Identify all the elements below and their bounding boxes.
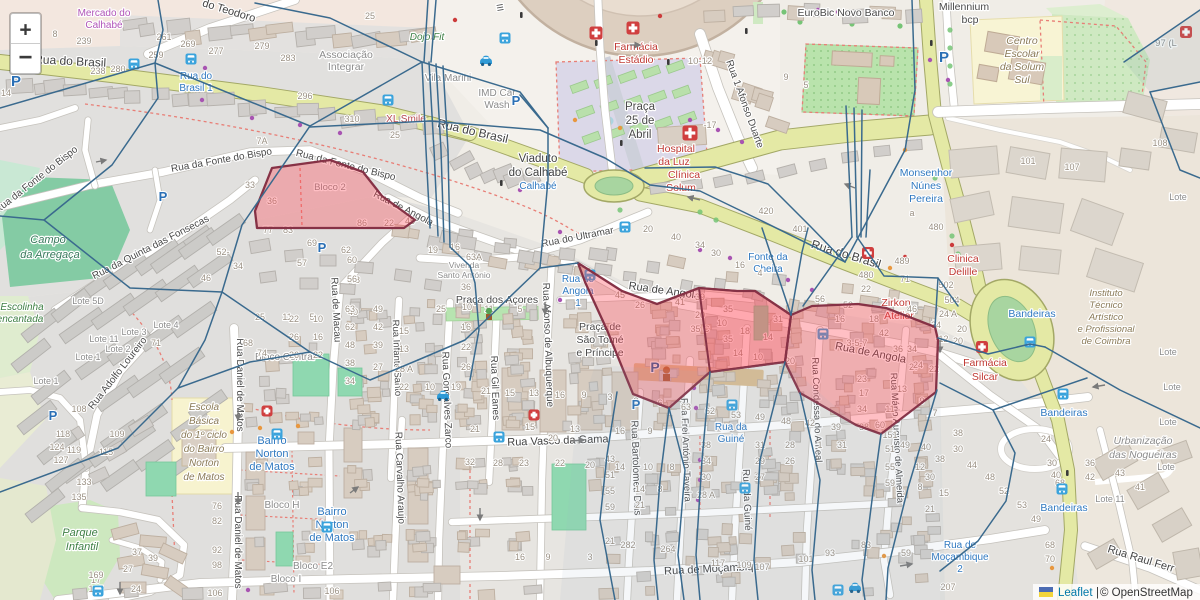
svg-text:8: 8 [52,29,57,39]
svg-text:269: 269 [180,39,195,49]
svg-text:7A: 7A [256,136,267,146]
svg-text:da Luz: da Luz [658,156,690,168]
svg-text:135: 135 [71,492,86,502]
svg-text:© OpenStreetMap: © OpenStreetMap [1100,587,1193,599]
svg-text:das Nogueiras: das Nogueiras [1109,449,1177,461]
svg-text:do 1º ciclo: do 1º ciclo [181,430,227,441]
svg-text:296: 296 [297,91,312,101]
svg-text:261: 261 [156,32,171,42]
svg-text:25 de: 25 de [626,115,655,127]
svg-text:de Matos: de Matos [183,472,224,483]
svg-text:Bandeiras: Bandeiras [1040,407,1087,419]
svg-text:20: 20 [957,324,967,334]
svg-text:Bandeiras: Bandeiras [1008,308,1055,320]
svg-text:P: P [11,73,21,90]
svg-text:38: 38 [345,358,355,368]
svg-text:20: 20 [643,224,653,234]
svg-text:70: 70 [1045,554,1055,564]
svg-text:15: 15 [525,422,535,432]
svg-text:Técnico: Técnico [1089,300,1122,311]
svg-text:19: 19 [428,245,438,255]
svg-text:44: 44 [967,460,977,470]
svg-text:16: 16 [313,332,323,342]
svg-text:36: 36 [1085,458,1095,468]
svg-text:101: 101 [1020,156,1035,166]
svg-text:16: 16 [461,322,471,332]
svg-text:Lote 4: Lote 4 [153,320,178,330]
svg-text:16: 16 [450,242,460,252]
svg-text:5: 5 [803,80,808,90]
svg-text:62: 62 [345,322,355,332]
svg-text:|: | [1096,587,1099,599]
svg-text:10-12: 10-12 [688,56,712,67]
svg-text:Wash: Wash [484,100,509,111]
svg-text:33: 33 [245,180,255,190]
svg-text:Artístico: Artístico [1088,312,1123,323]
svg-text:124: 124 [49,442,64,452]
svg-text:37: 37 [132,547,142,557]
svg-text:da Arregaça: da Arregaça [20,249,80,261]
svg-text:71: 71 [151,338,161,348]
svg-text:19: 19 [451,382,461,392]
svg-text:de Matos: de Matos [309,532,355,544]
svg-text:133: 133 [76,477,91,487]
svg-text:57: 57 [297,258,307,268]
svg-text:42: 42 [373,322,383,332]
svg-text:+: + [19,19,31,42]
svg-text:Campo: Campo [30,234,65,246]
svg-text:20: 20 [548,433,558,443]
svg-text:Urbanização: Urbanização [1114,435,1173,447]
svg-text:de Matos: de Matos [249,461,295,473]
svg-text:108: 108 [1152,138,1167,148]
svg-text:4: 4 [757,268,762,278]
svg-text:Bairro: Bairro [317,506,346,518]
svg-text:82: 82 [212,516,222,526]
svg-text:238: 238 [90,66,105,76]
svg-text:62: 62 [341,245,351,255]
svg-text:106: 106 [207,588,222,598]
svg-text:Monsenhor: Monsenhor [900,167,953,179]
svg-text:46: 46 [907,304,917,314]
svg-text:e Profissional: e Profissional [1077,324,1135,335]
svg-text:Lote: Lote [1157,462,1175,472]
svg-text:71: 71 [900,274,910,284]
svg-text:118: 118 [56,429,70,439]
svg-text:Infantil: Infantil [66,541,99,553]
svg-text:Delille: Delille [949,266,978,278]
svg-text:10: 10 [425,382,435,392]
svg-text:EuroBic Novo Banco: EuroBic Novo Banco [798,7,895,19]
svg-text:P: P [318,240,327,255]
svg-text:Santo António: Santo António [438,270,491,280]
svg-text:10: 10 [462,302,472,312]
svg-text:279: 279 [254,41,269,51]
svg-text:25: 25 [390,130,400,140]
svg-text:-17: -17 [703,120,716,130]
svg-text:Estádio: Estádio [618,54,653,66]
svg-text:a: a [909,208,914,218]
svg-text:40: 40 [671,232,681,242]
svg-text:Clínica: Clínica [668,169,700,181]
svg-text:39: 39 [148,553,158,563]
svg-text:46: 46 [201,273,211,283]
svg-text:da Solum: da Solum [1000,61,1045,73]
svg-text:53: 53 [1017,500,1027,510]
svg-text:169: 169 [88,570,103,580]
svg-text:63: 63 [345,304,355,314]
svg-text:56: 56 [815,294,825,304]
svg-text:P: P [49,408,58,423]
svg-text:P: P [939,49,949,66]
svg-text:22: 22 [399,382,409,392]
svg-text:Calhabé: Calhabé [85,20,123,31]
svg-text:24: 24 [131,584,141,594]
svg-text:49: 49 [1031,514,1041,524]
svg-text:56: 56 [347,274,357,284]
svg-text:23: 23 [519,458,529,468]
svg-text:28: 28 [493,458,503,468]
svg-text:52-: 52- [216,247,229,257]
svg-text:34: 34 [233,261,243,271]
svg-text:bcp: bcp [962,14,979,26]
svg-text:13: 13 [529,388,539,398]
svg-text:22: 22 [461,342,471,352]
svg-text:Lote: Lote [1159,347,1177,357]
svg-text:107: 107 [1064,162,1079,172]
svg-text:Associação: Associação [319,49,373,61]
svg-text:48: 48 [345,340,355,350]
svg-text:25: 25 [365,11,375,21]
svg-text:43: 43 [1115,468,1125,478]
svg-text:Sul: Sul [1014,74,1030,86]
svg-text:Fonte da: Fonte da [748,252,788,263]
svg-text:Calhabé: Calhabé [519,181,557,192]
svg-text:21: 21 [481,386,491,396]
svg-text:2: 2 [957,564,963,575]
svg-text:Farmácia: Farmácia [614,41,658,53]
svg-text:27: 27 [123,564,133,574]
svg-text:30: 30 [711,248,721,258]
svg-text:Núnes: Núnes [911,180,941,192]
svg-text:13: 13 [399,344,409,354]
svg-text:Leaflet: Leaflet [1058,587,1093,599]
svg-text:69: 69 [307,238,317,248]
svg-text:36: 36 [461,282,471,292]
svg-text:Lote: Lote [1163,382,1181,392]
svg-text:Lote 3: Lote 3 [121,327,146,337]
svg-text:Pereira: Pereira [909,193,943,205]
svg-text:22: 22 [861,284,871,294]
svg-text:489: 489 [894,256,909,266]
svg-text:Rua Daniel de Matos: Rua Daniel de Matos [234,338,245,431]
svg-text:106: 106 [324,586,339,596]
svg-text:Clinica: Clinica [947,253,979,265]
svg-text:Escolar: Escolar [1004,48,1040,60]
svg-text:Norton: Norton [255,448,288,460]
svg-text:Farmácia: Farmácia [963,357,1007,369]
svg-text:Escola: Escola [189,402,219,413]
svg-text:Norton: Norton [189,458,219,469]
svg-text:encantada: encantada [0,314,44,325]
svg-text:de Coimbra: de Coimbra [1081,336,1130,347]
svg-text:Bloco E2: Bloco E2 [293,561,333,572]
svg-text:60: 60 [347,255,357,265]
svg-text:68: 68 [1045,540,1055,550]
svg-text:310: 310 [344,114,359,124]
svg-text:do Calhabé: do Calhabé [509,167,568,179]
svg-text:Millennium: Millennium [939,1,989,13]
svg-text:239: 239 [76,36,91,46]
svg-text:63A: 63A [466,252,482,262]
svg-text:Lote 1: Lote 1 [33,376,58,386]
svg-text:Lote 2: Lote 2 [105,344,130,354]
svg-text:127: 127 [53,455,68,465]
svg-text:38: 38 [953,428,963,438]
svg-text:P: P [159,189,168,204]
svg-text:16: 16 [555,390,565,400]
svg-text:34: 34 [345,376,355,386]
svg-text:24 A: 24 A [939,309,957,319]
svg-text:32: 32 [465,457,475,467]
svg-text:Lote 11: Lote 11 [1095,494,1124,504]
svg-text:Bloco I: Bloco I [271,574,302,585]
svg-text:420: 420 [758,206,773,216]
svg-text:108: 108 [71,404,86,414]
svg-text:do Bairro: do Bairro [184,444,225,455]
svg-text:Instituto: Instituto [1089,288,1122,299]
svg-text:480: 480 [928,222,943,232]
svg-text:Lote 5D: Lote 5D [72,296,104,306]
svg-text:22: 22 [555,458,565,468]
svg-text:16: 16 [735,260,745,270]
svg-text:21: 21 [470,424,480,434]
svg-text:76: 76 [212,501,222,511]
svg-text:34: 34 [695,240,705,250]
svg-text:Abril: Abril [628,129,651,141]
svg-text:1: 1 [575,298,581,309]
svg-text:24: 24 [1041,434,1051,444]
svg-text:98: 98 [212,560,222,570]
svg-text:15: 15 [505,388,515,398]
svg-text:Básica: Básica [189,416,219,427]
svg-text:41: 41 [1135,482,1145,492]
svg-text:30: 30 [953,444,963,454]
svg-text:Escolinha: Escolinha [0,302,44,313]
svg-text:Praça: Praça [625,101,656,113]
svg-text:480: 480 [858,270,873,280]
svg-text:Viaduto: Viaduto [519,153,558,165]
svg-text:42: 42 [1085,472,1095,482]
svg-text:283: 283 [280,53,295,63]
svg-text:14: 14 [1,88,11,98]
svg-text:25: 25 [436,304,446,314]
svg-text:Integrar: Integrar [328,61,365,73]
svg-text:22: 22 [289,314,299,324]
svg-text:5: 5 [517,304,522,314]
svg-text:16: 16 [515,552,525,562]
svg-text:39: 39 [373,340,383,350]
svg-text:15: 15 [399,326,409,336]
svg-text:Dojo Fit: Dojo Fit [410,32,446,43]
svg-text:10: 10 [313,314,323,324]
svg-text:49: 49 [373,304,383,314]
svg-text:30: 30 [1047,458,1057,468]
svg-text:92: 92 [212,545,222,555]
svg-text:Lote: Lote [1159,417,1177,427]
svg-text:27: 27 [373,362,383,372]
svg-text:9: 9 [545,552,550,562]
svg-text:Bloco H: Bloco H [264,500,299,511]
svg-text:401: 401 [792,224,807,234]
svg-text:Centro: Centro [1006,35,1038,47]
svg-text:74: 74 [257,348,267,358]
svg-text:Lote: Lote [1169,192,1187,202]
svg-text:119: 119 [67,445,81,455]
svg-text:Parque: Parque [62,527,97,539]
svg-text:Mercado do: Mercado do [78,8,131,19]
svg-text:Bandeiras: Bandeiras [1040,502,1087,514]
svg-text:68: 68 [243,338,253,348]
svg-text:Hospital: Hospital [657,143,695,155]
svg-text:9: 9 [783,72,788,82]
svg-text:277: 277 [208,46,223,56]
svg-text:26: 26 [461,362,471,372]
svg-text:Lote 1: Lote 1 [75,352,100,362]
svg-text:−: − [18,44,32,71]
svg-text:109: 109 [109,429,124,439]
svg-text:48: 48 [985,472,995,482]
svg-text:Silcar: Silcar [972,371,999,383]
svg-text:Lote 11: Lote 11 [89,334,118,344]
svg-text:Rua Daniel de Matos: Rua Daniel de Matos [232,495,243,588]
